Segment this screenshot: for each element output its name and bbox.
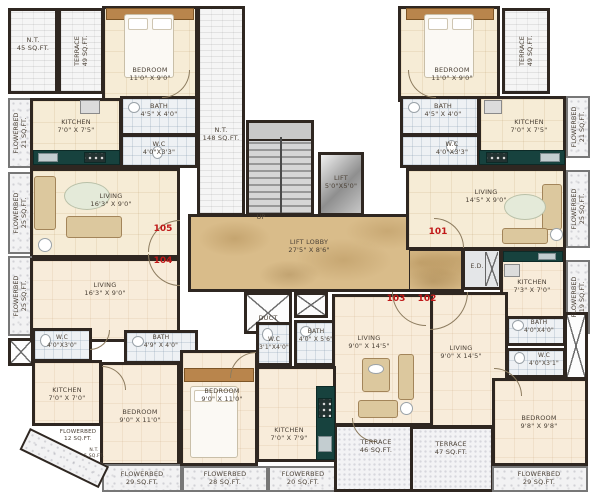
label-flowerbed-28: FLOWERBED28 SQ.FT. — [204, 470, 247, 486]
label-terrace-49-right: TERRACE49 SQ.FT. — [502, 9, 550, 93]
label-bath-101: BATH4'5" X 4'0" — [425, 102, 462, 118]
area-size-text: 29 SQ.FT. — [121, 478, 164, 486]
room-dims-text: 4'0"X3'3" — [143, 148, 175, 156]
area-size-text: 47 SQ.FT. — [435, 448, 467, 456]
kitchen-sink-101 — [540, 153, 560, 162]
area-size-text: 49 SQ.FT. — [526, 36, 534, 67]
room-name-text: BATH — [144, 334, 178, 342]
area-size-text: 21 SQ.FT. — [20, 118, 28, 149]
area-name-text: TERRACE — [435, 440, 467, 448]
room-dims-text: 7'0" X 7'9" — [271, 434, 308, 442]
pillow — [128, 18, 148, 30]
room-dims-text: 9'8" X 9'8" — [521, 422, 558, 430]
room-name-text: LIFT — [325, 174, 357, 182]
room-dims-text: 11'0" X 9'0" — [129, 74, 170, 82]
fridge-105 — [80, 100, 100, 114]
stool-living-105 — [38, 238, 52, 252]
area-size-text: 21 SQ.FT. — [578, 112, 586, 143]
room-dims-text: 14'5" X 9'0" — [465, 196, 506, 204]
room-dims-text: 7'0" X 7'5" — [511, 126, 548, 134]
room-name-text: BEDROOM — [431, 66, 472, 74]
basin-bath-104 — [132, 336, 144, 347]
label-nt-148: N.T.148 SQ.FT. — [203, 126, 240, 142]
room-dims-text: 4'0"X3'1" — [529, 360, 559, 368]
area-size-text: 25 SQ.FT. — [20, 198, 28, 229]
label-up: UP — [256, 213, 265, 221]
room-name-text: LIVING — [84, 281, 125, 289]
label-kitchen-102: KITCHEN7'3" X 7'0" — [514, 278, 551, 294]
room-dims-text: 4'0"X3'3" — [436, 148, 468, 156]
label-kitchen-101: KITCHEN7'0" X 7'5" — [511, 118, 548, 134]
room-name-text: BATH — [141, 102, 178, 110]
stool-living-101 — [550, 228, 563, 241]
label-flowerbed-21-left: FLOWERBED21 SQ.FT. — [8, 99, 32, 167]
unit-number-text: 104 — [154, 256, 173, 266]
room-dims-text: 27'5" X 8'6" — [288, 246, 329, 254]
label-bedroom-105: BEDROOM11'0" X 9'0" — [129, 66, 170, 82]
room-name-text: BEDROOM — [521, 414, 558, 422]
basin-bath-102 — [512, 320, 524, 331]
room-dims-text: 16'3" X 9'0" — [84, 289, 125, 297]
room-dims-text: 4'0"X3'0" — [47, 342, 77, 350]
label-kitchen-105: KITCHEN7'0" X 7'5" — [58, 118, 95, 134]
label-kitchen-104: KITCHEN7'0" X 7'0" — [49, 386, 86, 402]
label-nt-45: N.T.45 SQ.FT. — [17, 36, 49, 52]
label-bedroom-103: BEDROOM9'0" X 11'0" — [201, 387, 242, 403]
sofa-living-103 — [358, 400, 398, 418]
label-ed: E.D. — [470, 263, 483, 271]
kitchen-stove-101 — [486, 152, 508, 163]
rug-living-101 — [504, 194, 546, 220]
nt-148-area — [197, 6, 245, 216]
area-name-text: FLOWERBED — [570, 107, 578, 148]
area-name-text: FLOWERBED — [121, 470, 164, 478]
room-dims-text: 4'9" X 4'0" — [144, 342, 178, 350]
cupboard-living-103 — [398, 354, 414, 400]
room-name-text: LIVING — [465, 188, 506, 196]
label-bedroom-101: BEDROOM11'0" X 9'0" — [431, 66, 472, 82]
room-name-text: BATH — [524, 319, 554, 327]
room-name-text: BATH — [425, 102, 462, 110]
label-terrace-49-left: TERRACE49 SQ.FT. — [58, 9, 104, 93]
label-bath-105: BATH4'5" X 4'0" — [141, 102, 178, 118]
room-name-text: LIVING — [348, 334, 389, 342]
area-name-text: N.T. — [17, 36, 49, 44]
stair-divider — [280, 137, 282, 213]
area-name-text: TERRACE — [518, 36, 526, 66]
room-name-text: KITCHEN — [49, 386, 86, 394]
area-size-text: 29 SQ.FT. — [518, 478, 561, 486]
label-lift-lobby: LIFT LOBBY27'5" X 8'6" — [288, 238, 329, 254]
label-kitchen-103: KITCHEN7'0" X 7'9" — [271, 426, 308, 442]
room-name-text: KITCHEN — [514, 278, 551, 286]
label-living-103: LIVING9'0" X 14'5" — [348, 334, 389, 350]
kitchen-stove-105 — [84, 152, 106, 163]
label-terrace-47: TERRACE47 SQ.FT. — [435, 440, 467, 456]
label-flowerbed-25-right: FLOWERBED25 SQ.FT. — [566, 171, 590, 247]
room-dims-text: 5'0"X5'0" — [325, 182, 357, 190]
fridge-102 — [504, 264, 520, 277]
terrace-47 — [410, 426, 494, 492]
area-size-text: 148 SQ.FT. — [203, 134, 240, 142]
area-size-text: 46 SQ.FT. — [360, 446, 392, 454]
duct-small — [294, 292, 328, 318]
label-flowerbed-29-bl: FLOWERBED29 SQ.FT. — [121, 470, 164, 486]
room-dims-text: 7'0" X 7'5" — [58, 126, 95, 134]
room-dims-text: 7'3" X 7'0" — [514, 286, 551, 294]
area-name-text: TERRACE — [360, 438, 392, 446]
sofa-living-101 — [502, 228, 548, 244]
area-name-text: FLOWERBED — [204, 470, 247, 478]
room-name-text: BEDROOM — [129, 66, 170, 74]
area-name-text: FLOWERBED — [282, 470, 325, 478]
area-name-text: FLOWERBED — [518, 470, 561, 478]
basin-bath-105 — [128, 102, 140, 113]
unit-number-text: 101 — [429, 227, 448, 237]
kitchen-sink-103 — [318, 436, 332, 452]
label-flowerbed-20: FLOWERBED20 SQ.FT. — [282, 470, 325, 486]
label-flowerbed-12: FLOWERBED12 SQ.FT. — [60, 429, 96, 443]
ed-text: E.D. — [470, 263, 483, 271]
area-size-text: 49 SQ.FT. — [81, 36, 89, 67]
label-lift: LIFT5'0"X5'0" — [325, 174, 357, 190]
toilet-wc-102 — [514, 352, 525, 364]
floor-plan-canvas: 105 104 101 103 102 N.T.45 SQ.FT. BEDROO… — [0, 0, 600, 504]
label-living-101: LIVING14'5" X 9'0" — [465, 188, 506, 204]
room-name-text: BEDROOM — [201, 387, 242, 395]
label-nt-5: N.T.5 SQ.FT. — [84, 448, 104, 459]
room-dims-text: 9'0" X 14'5" — [440, 352, 481, 360]
area-size-text: 20 SQ.FT. — [282, 478, 325, 486]
area-size-text: 19 SQ.FT. — [578, 282, 586, 313]
area-size-text: 12 SQ.FT. — [60, 436, 96, 443]
room-dims-text: 9'0" X 14'5" — [348, 342, 389, 350]
label-flowerbed-29-br: FLOWERBED29 SQ.FT. — [518, 470, 561, 486]
kitchen-sink-102 — [538, 253, 556, 260]
room-name-text: W.C — [47, 334, 77, 342]
room-name-text: LIVING — [90, 192, 131, 200]
room-dims-text: 4'0"X4'0" — [524, 327, 554, 335]
unit-number-102: 102 — [418, 294, 437, 304]
room-name-text: W.C — [436, 140, 468, 148]
pillow — [452, 18, 472, 30]
staircase — [246, 120, 314, 216]
room-dims-text: 9'0" X 11'0" — [119, 416, 160, 424]
ed-duct-panel — [485, 252, 498, 286]
up-text: UP — [256, 213, 265, 221]
unit-number-104: 104 — [154, 256, 173, 266]
area-name-text: FLOWERBED — [570, 277, 578, 318]
pillow — [428, 18, 448, 30]
room-name-text: KITCHEN — [271, 426, 308, 434]
area-size-text: 25 SQ.FT. — [578, 194, 586, 225]
area-size-text: 5 SQ.FT. — [84, 454, 104, 460]
lobby-extension — [410, 248, 464, 292]
room-dims-text: 3'1"X4'0" — [259, 344, 289, 352]
label-living-102: LIVING9'0" X 14'5" — [440, 344, 481, 360]
door-arc-wc-104 — [90, 330, 110, 350]
unit-number-text: 105 — [154, 224, 173, 234]
label-flowerbed-25-left-upper: FLOWERBED25 SQ.FT. — [8, 173, 32, 253]
label-bedroom-102: BEDROOM9'8" X 9'8" — [521, 414, 558, 430]
kitchen-sink-105 — [38, 153, 58, 162]
room-dims-text: 7'0" X 7'0" — [49, 394, 86, 402]
table-living-105 — [66, 216, 122, 238]
label-flowerbed-21-right: FLOWERBED21 SQ.FT. — [566, 97, 590, 157]
unit-number-101: 101 — [429, 227, 448, 237]
unit-number-105: 105 — [154, 224, 173, 234]
label-living-105: LIVING16'3" X 9'0" — [90, 192, 131, 208]
area-name-text: TERRACE — [73, 36, 81, 66]
label-bath-102: BATH4'0"X4'0" — [524, 319, 554, 334]
unit-number-103: 103 — [387, 294, 406, 304]
label-flowerbed-25-left-lower: FLOWERBED25 SQ.FT. — [8, 257, 32, 335]
unit-number-text: 102 — [418, 294, 437, 304]
area-size-text: 28 SQ.FT. — [204, 478, 247, 486]
room-name-text: KITCHEN — [511, 118, 548, 126]
room-dims-text: 4'5" X 4'0" — [425, 110, 462, 118]
stool-living-103 — [400, 402, 413, 415]
room-name-text: W.C — [259, 336, 289, 344]
duct-text: DUCT — [258, 314, 277, 322]
area-name-text: FLOWERBED — [570, 189, 578, 230]
basin-bath-101 — [408, 102, 420, 113]
area-size-text: 45 SQ.FT. — [17, 44, 49, 52]
room-dims-text: 4'0" X 5'6" — [299, 336, 333, 344]
label-flowerbed-19-right: FLOWERBED19 SQ.FT. — [566, 261, 590, 333]
label-wc-102: W.C4'0"X3'1" — [529, 352, 559, 367]
area-size-text: 25 SQ.FT. — [20, 281, 28, 312]
area-name-text: FLOWERBED — [12, 113, 20, 154]
area-name-text: N.T. — [203, 126, 240, 134]
sofa-living-105 — [34, 176, 56, 230]
label-wc-105: W.C4'0"X3'3" — [143, 140, 175, 156]
room-name-text: W.C — [529, 352, 559, 360]
label-bedroom-104: BEDROOM9'0" X 11'0" — [119, 408, 160, 424]
label-wc-104: W.C4'0"X3'0" — [47, 334, 77, 349]
label-bath-103: BATH4'0" X 5'6" — [299, 328, 333, 343]
label-terrace-46: TERRACE46 SQ.FT. — [360, 438, 392, 454]
label-wc-101: W.C4'0"X3'3" — [436, 140, 468, 156]
area-name-text: FLOWERBED — [12, 193, 20, 234]
room-name-text: BATH — [299, 328, 333, 336]
room-dims-text: 11'0" X 9'0" — [431, 74, 472, 82]
pillow — [152, 18, 172, 30]
fridge-101 — [484, 100, 502, 114]
area-name-text: FLOWERBED — [60, 429, 96, 436]
room-name-text: LIFT LOBBY — [288, 238, 329, 246]
label-bath-104: BATH4'9" X 4'0" — [144, 334, 178, 349]
room-name-text: W.C — [143, 140, 175, 148]
room-name-text: KITCHEN — [58, 118, 95, 126]
label-wc-103: W.C3'1"X4'0" — [259, 336, 289, 351]
room-dims-text: 4'5" X 4'0" — [141, 110, 178, 118]
label-duct: DUCT — [258, 314, 277, 322]
kitchen-stove-103 — [318, 398, 332, 418]
room-dims-text: 9'0" X 11'0" — [201, 395, 242, 403]
duct-left — [8, 338, 34, 366]
room-name-text: BEDROOM — [119, 408, 160, 416]
unit-number-text: 103 — [387, 294, 406, 304]
area-name-text: FLOWERBED — [12, 276, 20, 317]
room-name-text: LIVING — [440, 344, 481, 352]
label-living-104: LIVING16'3" X 9'0" — [84, 281, 125, 297]
room-dims-text: 16'3" X 9'0" — [90, 200, 131, 208]
mirror-living-103 — [368, 364, 384, 374]
